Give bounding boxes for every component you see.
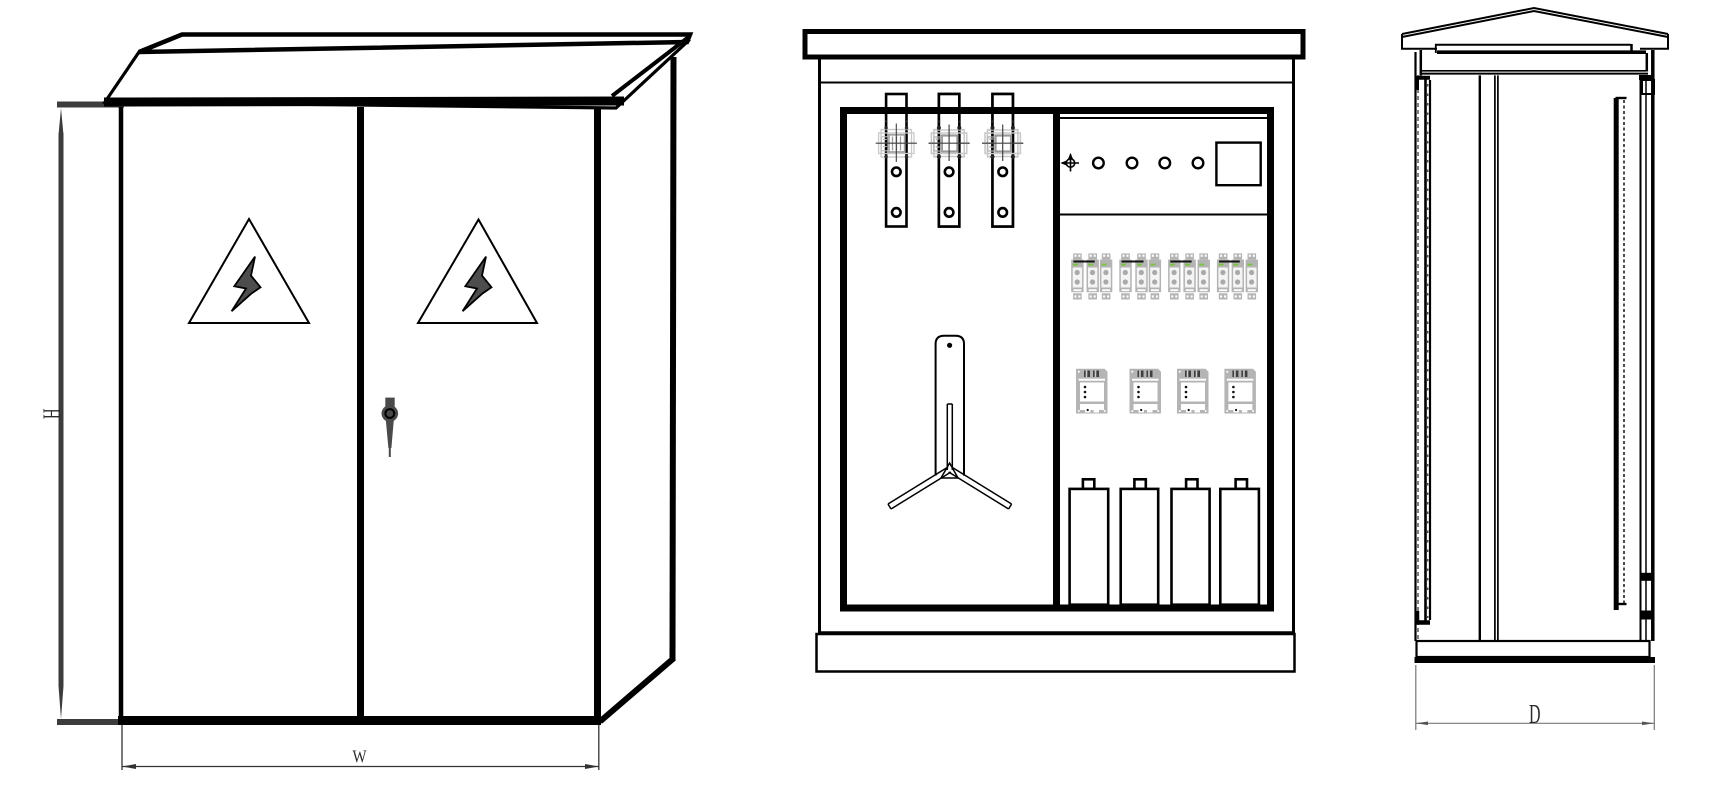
svg-text:H: H: [39, 409, 66, 420]
svg-text:D: D: [1529, 699, 1541, 729]
svg-text:W: W: [353, 747, 367, 767]
